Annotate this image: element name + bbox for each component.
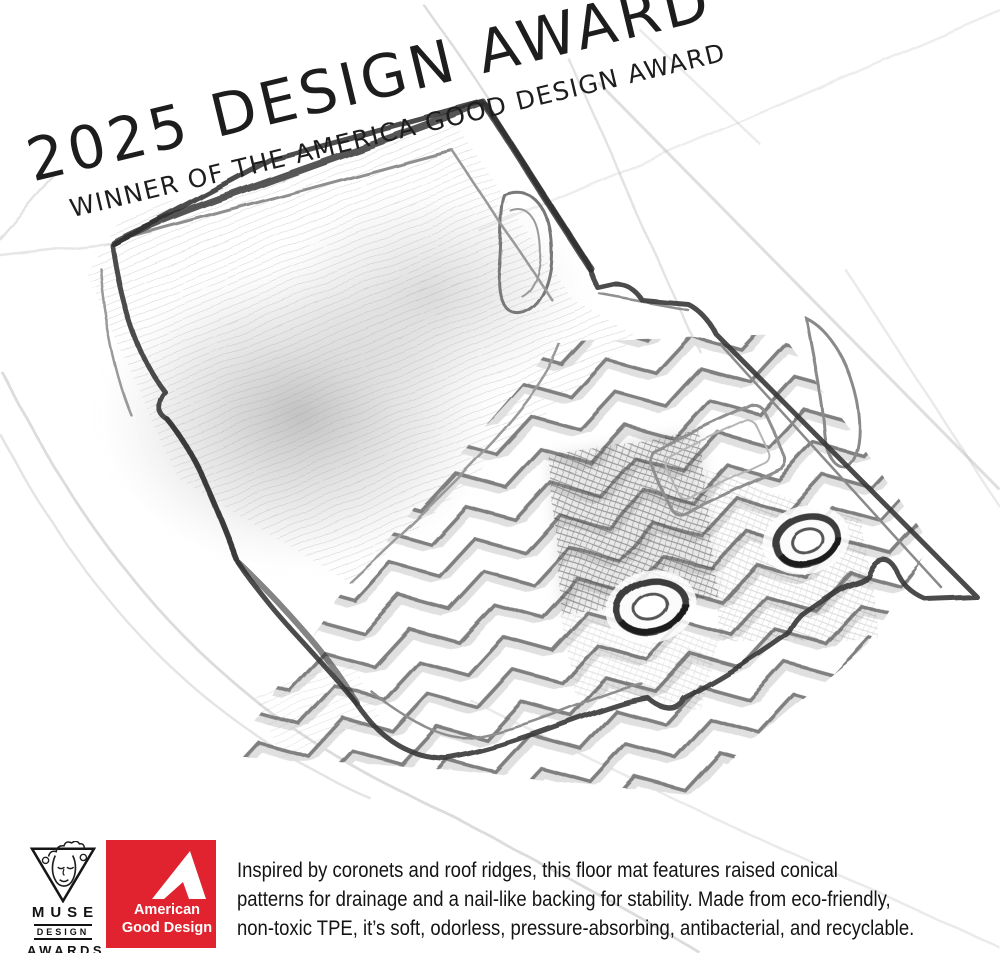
muse-logo-design: DESIGN (34, 924, 93, 940)
muse-logo-awards: AWARDS (27, 943, 102, 953)
agd-label-line1: American (118, 901, 216, 919)
american-good-design-label: American Good Design (106, 901, 216, 937)
muse-logo-name: MUSE (29, 904, 102, 921)
muse-face-icon (26, 841, 100, 903)
description-line: patterns for drainage and a nail-like ba… (237, 885, 994, 914)
product-description: Inspired by coronets and roof ridges, th… (237, 856, 994, 943)
american-good-design-logo: American Good Design (106, 840, 216, 948)
product-image: 2025 DESIGN AWARD WINNER OF THE AMERICA … (0, 0, 1000, 953)
agd-label-line2: Good Design (118, 919, 216, 937)
muse-design-awards-logo: MUSE DESIGN AWARDS (24, 841, 102, 953)
description-line: non-toxic TPE, it’s soft, odorless, pres… (237, 914, 994, 943)
american-good-design-a-icon (151, 849, 207, 901)
description-line: Inspired by coronets and roof ridges, th… (237, 856, 994, 885)
floor-mat-sketch-illustration (0, 0, 1000, 953)
